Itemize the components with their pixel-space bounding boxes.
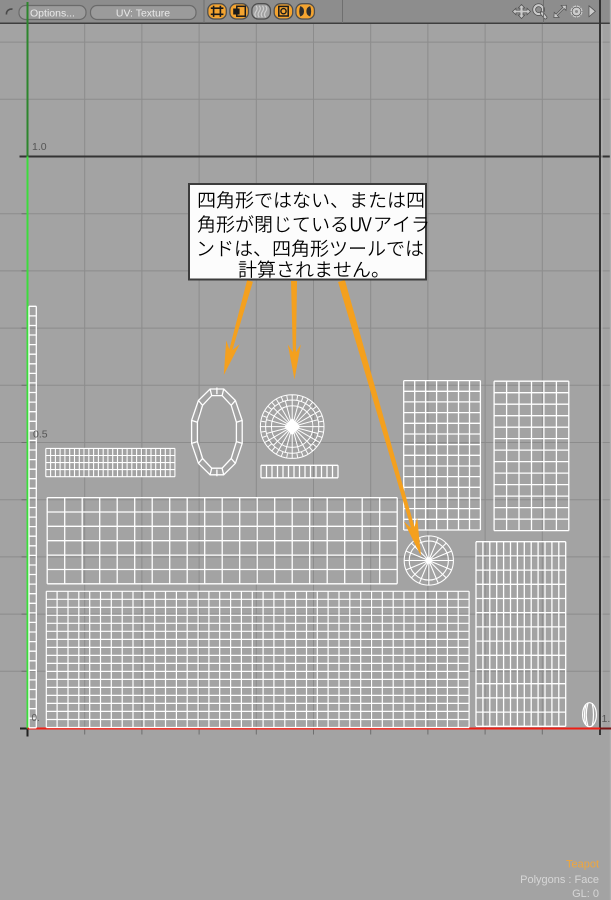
svg-text:GL: 0: GL: 0	[572, 888, 599, 900]
svg-text:UV: Texture: UV: Texture	[116, 7, 170, 19]
svg-text:1.0: 1.0	[32, 141, 47, 153]
svg-text:1.: 1.	[602, 713, 611, 725]
svg-text:Polygons : Face: Polygons : Face	[520, 874, 599, 886]
svg-text:0.5: 0.5	[33, 429, 48, 441]
svg-text:0.: 0.	[32, 713, 40, 724]
svg-text:Teapot: Teapot	[566, 859, 599, 871]
svg-text:Options...: Options...	[30, 7, 75, 19]
